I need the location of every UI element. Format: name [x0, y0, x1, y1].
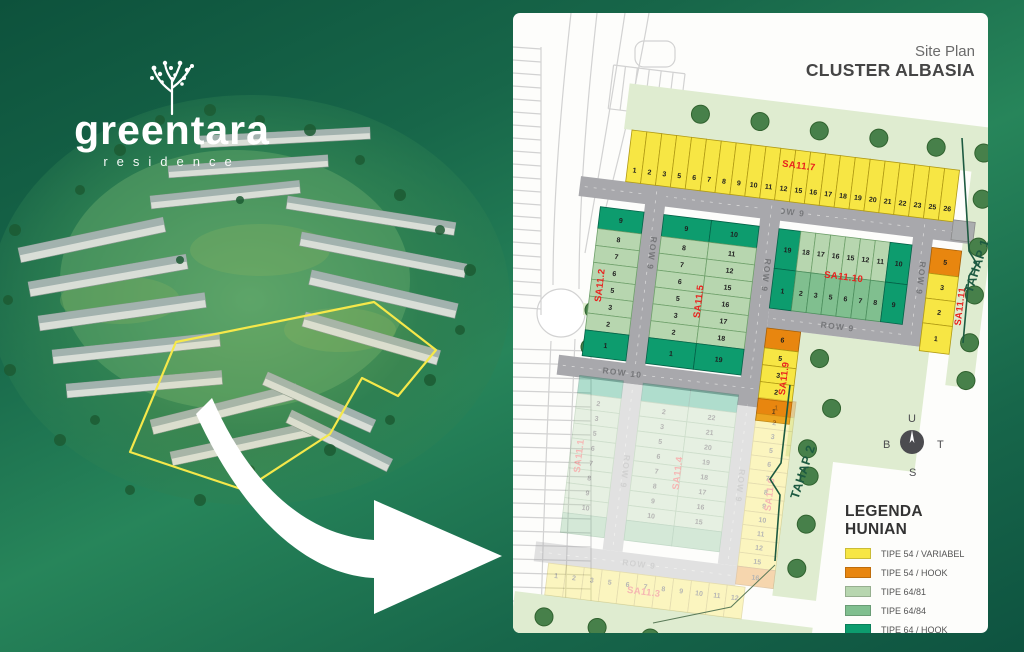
legend-swatch: [845, 586, 871, 597]
brand-panel: greentara residence: [0, 0, 513, 652]
legend-label: TIPE 54 / VARIABEL: [881, 549, 964, 559]
tree: [125, 485, 135, 495]
lot-number: 17: [719, 318, 728, 326]
tree: [176, 256, 184, 264]
lot-number: 22: [707, 414, 716, 422]
legend-label: TIPE 64/84: [881, 606, 926, 616]
legend-label: TIPE 64/81: [881, 587, 926, 597]
lot-number: 15: [694, 519, 703, 527]
tree: [9, 224, 21, 236]
lot-number: 12: [779, 185, 788, 193]
lot-number: 19: [854, 195, 863, 203]
block-SA11.10: 191817161512111012356789SA11.10: [769, 229, 912, 325]
lot-number: 16: [721, 301, 730, 309]
lot-number: 17: [824, 191, 833, 199]
tree: [435, 225, 445, 235]
legend-item: TIPE 64 / HOOK: [845, 624, 985, 633]
lot-number: 12: [730, 595, 739, 603]
lot-number: 12: [755, 545, 764, 553]
legend-item: TIPE 64/84: [845, 605, 985, 616]
compass: U T S B: [879, 413, 945, 481]
lot-number: 17: [816, 251, 825, 259]
tree: [455, 325, 465, 335]
legend-label: TIPE 64 / HOOK: [881, 625, 948, 634]
tree: [54, 434, 66, 446]
lot-number: 10: [695, 590, 704, 598]
tree: [4, 364, 16, 376]
tree: [75, 185, 85, 195]
tree: [394, 189, 406, 201]
legend-swatch: [845, 624, 871, 633]
lot-number: 19: [714, 356, 723, 364]
lot-number: 11: [757, 531, 765, 539]
title-kicker: Site Plan: [806, 43, 975, 60]
lot-number: 21: [705, 429, 714, 437]
poster: { "brand": {"name": "greentara", "subtit…: [0, 0, 1024, 652]
lot-number: 22: [898, 200, 907, 208]
lot-number: 10: [749, 182, 758, 190]
compass-west: B: [883, 439, 890, 451]
lot-number: 20: [868, 196, 877, 204]
tree: [194, 494, 206, 506]
legend-swatch: [845, 605, 871, 616]
brand-logo: greentara residence: [52, 58, 292, 169]
legend-swatch: [845, 548, 871, 559]
legend-item: TIPE 54 / HOOK: [845, 567, 985, 578]
legend-swatch: [845, 567, 871, 578]
tree: [385, 415, 395, 425]
lot-number: 11: [876, 258, 884, 266]
tree: [304, 124, 316, 136]
tree: [90, 415, 100, 425]
brand-name: greentara: [52, 110, 292, 151]
title-cluster: CLUSTER ALBASIA: [806, 60, 975, 81]
lot-number: 21: [883, 198, 892, 206]
page-title: Site Plan CLUSTER ALBASIA: [806, 43, 975, 81]
lot-number: 10: [647, 513, 656, 521]
lot: [723, 585, 745, 619]
lot-number: 12: [861, 257, 870, 265]
block-SA11.5: 987653211011121516171819SA11.5: [646, 215, 760, 376]
lot-number: 25: [928, 204, 937, 212]
lot-number: 15: [753, 559, 762, 567]
lot-number: 10: [730, 231, 739, 239]
lot-number: 10: [758, 517, 767, 525]
lot-number: 17: [698, 489, 707, 497]
block-SA11.4: 2356789102221201918171615SA11.4: [624, 383, 739, 552]
lot-number: 15: [846, 255, 855, 263]
legend-title: LEGENDA HUNIAN: [845, 503, 985, 539]
compass-dial: [898, 428, 926, 456]
tree: [324, 444, 336, 456]
tree: [355, 155, 365, 165]
lot-number: 10: [581, 505, 590, 513]
lot-number: 19: [702, 459, 711, 467]
tree: [464, 264, 476, 276]
legend-item: TIPE 54 / VARIABEL: [845, 548, 985, 559]
site-plan-card: ROW 9ROW 9ROW 9ROW 9ROW 9ROW 10123567891…: [513, 13, 988, 633]
compass-east: T: [937, 439, 944, 451]
lot-number: 19: [783, 247, 792, 255]
lot-number: 26: [943, 206, 952, 214]
legend: LEGENDA HUNIAN TIPE 54 / VARIABELTIPE 54…: [845, 503, 985, 633]
lot-number: 15: [794, 187, 803, 195]
lot-number: 11: [713, 592, 721, 600]
tree: [236, 196, 244, 204]
lot-number: 18: [839, 193, 848, 201]
lot-number: 12: [725, 268, 734, 276]
tree: [3, 295, 13, 305]
compass-south: S: [909, 467, 916, 479]
lot-number: 10: [894, 261, 903, 269]
lot-number: 18: [700, 474, 709, 482]
lot-number: 16: [831, 253, 840, 261]
legend-item: TIPE 64/81: [845, 586, 985, 597]
brand-subtitle: residence: [52, 154, 292, 169]
legend-items: TIPE 54 / VARIABELTIPE 54 / HOOKTIPE 64/…: [845, 548, 985, 633]
lot-number: 11: [727, 251, 735, 259]
lot-number: 23: [913, 202, 922, 210]
compass-north: U: [908, 413, 916, 425]
lot-number: 20: [703, 444, 712, 452]
tree: [424, 374, 436, 386]
lot-number: 18: [717, 335, 726, 343]
lot-number: 16: [809, 189, 818, 197]
lot-number: 16: [696, 504, 705, 512]
legend-label: TIPE 54 / HOOK: [881, 568, 948, 578]
phase-2-section: ROW 9ROW 9ROW 9235678910SA11.12356789102…: [530, 373, 796, 623]
utility-plot: [951, 220, 975, 243]
lot-number: 15: [723, 284, 732, 292]
lot-number: 11: [764, 184, 772, 192]
lot-number: 18: [801, 249, 810, 257]
